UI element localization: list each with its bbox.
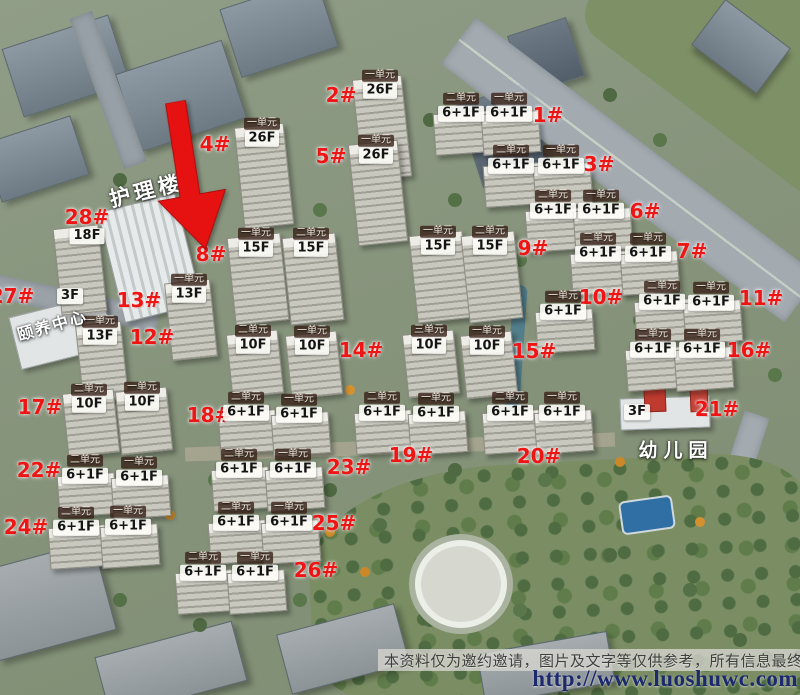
building-24-number-label: 24# (4, 515, 49, 539)
facility-label-3: 幼儿园 (638, 436, 713, 463)
building-20-unit-1-badge: 二单元6+1F (487, 392, 533, 421)
unit-name-label: 三单元 (411, 325, 447, 337)
unit-name-label: 二单元 (644, 281, 680, 293)
floor-count-label: 15F (294, 241, 329, 257)
floor-count-label: 6+1F (540, 304, 586, 320)
floor-count-label: 6+1F (62, 468, 108, 484)
masterplan-aerial-view: 1#二单元6+1F一单元6+1F2#一单元26F3#二单元6+1F一单元6+1F… (0, 0, 800, 695)
building-23-number-label: 23# (327, 455, 372, 479)
floor-count-label: 6+1F (413, 406, 459, 422)
building-20-number-label: 20# (517, 444, 562, 468)
building-11-unit-1-badge: 二单元6+1F (639, 281, 685, 310)
floor-count-label: 26F (245, 131, 280, 147)
unit-name-label: 一单元 (294, 326, 330, 338)
building-25-unit-2-badge: 一单元6+1F (266, 502, 312, 531)
building-19-unit-2-badge: 一单元6+1F (413, 393, 459, 422)
building-25-unit-1-badge: 二单元6+1F (213, 502, 259, 531)
floor-count-label: 6+1F (232, 565, 278, 581)
building-21-number-label: 21# (695, 397, 740, 421)
building-16-number-label: 16# (727, 338, 772, 362)
unit-name-label: 一单元 (630, 233, 666, 245)
floor-count-label: 6+1F (116, 470, 162, 486)
unit-name-label: 二单元 (228, 392, 264, 404)
floor-count-label: 6+1F (216, 462, 262, 478)
facility-3-floor-badge: 3F (624, 404, 650, 420)
building-7-unit-1-badge: 二单元6+1F (575, 233, 621, 262)
building-23-unit-2-badge: 一单元6+1F (270, 449, 316, 478)
unit-name-label: 二单元 (493, 145, 529, 157)
floor-count-label: 18F (70, 228, 105, 244)
unit-name-label: 一单元 (244, 118, 280, 130)
floor-count-label: 6+1F (270, 462, 316, 478)
building-28-floor-badge: 18F (70, 228, 105, 244)
building-25-number-label: 25# (312, 511, 357, 535)
building-2-number-label: 2# (326, 83, 357, 107)
building-6-number-label: 6# (630, 199, 661, 223)
watermark-url: http://www.luoshuwc.com (532, 666, 798, 692)
floor-count-label: 6+1F (223, 405, 269, 421)
floor-count-label: 13F (172, 287, 207, 303)
building-17-unit-1-badge: 二单元10F (71, 384, 107, 413)
unit-name-label: 二单元 (293, 228, 329, 240)
building-4-unit-1-badge: 一单元26F (244, 118, 280, 147)
building-11-number-label: 11# (739, 286, 784, 310)
floor-count-label: 6+1F (630, 342, 676, 358)
building-13-number-label: 13# (117, 288, 162, 312)
unit-name-label: 二单元 (71, 384, 107, 396)
building-15-unit-2-badge: 一单元10F (469, 326, 505, 355)
unit-name-label: 一单元 (491, 93, 527, 105)
floor-count-label: 6+1F (688, 295, 734, 311)
unit-name-label: 二单元 (364, 392, 400, 404)
unit-name-label: 一单元 (281, 394, 317, 406)
building-22-unit-1-badge: 二单元6+1F (62, 455, 108, 484)
unit-name-label: 一单元 (545, 291, 581, 303)
unit-name-label: 二单元 (492, 392, 528, 404)
floor-count-label: 6+1F (578, 203, 624, 219)
floor-count-label: 26F (363, 83, 398, 99)
floor-count-label: 6+1F (266, 515, 312, 531)
building-16-unit-2-badge: 一单元6+1F (679, 329, 725, 358)
building-6-unit-1-badge: 二单元6+1F (530, 190, 576, 219)
floor-count-label: 6+1F (213, 515, 259, 531)
unit-name-label: 一单元 (693, 282, 729, 294)
unit-name-label: 一单元 (271, 502, 307, 514)
unit-name-label: 二单元 (535, 190, 571, 202)
floor-count-label: 6+1F (538, 158, 584, 174)
building-2-unit-1-badge: 一单元26F (362, 70, 398, 99)
building-19-number-label: 19# (389, 443, 434, 467)
floor-count-label: 6+1F (488, 158, 534, 174)
unit-name-label: 二单元 (472, 226, 508, 238)
building-14-number-label: 14# (339, 338, 384, 362)
unit-name-label: 二单元 (185, 552, 221, 564)
building-19-unit-1-badge: 二单元6+1F (359, 392, 405, 421)
floor-count-label: 10F (412, 338, 447, 354)
floor-count-label: 10F (72, 397, 107, 413)
circular-plaza (415, 540, 507, 628)
building-14-unit-2-badge: 一单元10F (294, 326, 330, 355)
building-1-unit-1-badge: 二单元6+1F (438, 93, 484, 122)
building-12-number-label: 12# (130, 325, 175, 349)
floor-count-label: 6+1F (180, 565, 226, 581)
building-15-number-label: 15# (512, 339, 557, 363)
floor-count-label: 15F (421, 239, 456, 255)
unit-name-label: 一单元 (583, 190, 619, 202)
building-11-unit-2-badge: 一单元6+1F (688, 282, 734, 311)
building-23-unit-1-badge: 二单元6+1F (216, 449, 262, 478)
floor-count-label: 6+1F (639, 294, 685, 310)
building-1-number-label: 1# (533, 103, 564, 127)
unit-name-label: 一单元 (275, 449, 311, 461)
unit-name-label: 一单元 (237, 552, 273, 564)
unit-name-label: 一单元 (121, 457, 157, 469)
building-24-unit-2-badge: 一单元6+1F (105, 506, 151, 535)
floor-count-label: 26F (359, 148, 394, 164)
floor-count-label: 6+1F (486, 106, 532, 122)
unit-name-label: 一单元 (420, 226, 456, 238)
building-5-number-label: 5# (316, 144, 347, 168)
floor-count-label: 6+1F (679, 342, 725, 358)
building-13-unit-1-badge: 一单元13F (171, 274, 207, 303)
floor-count-label: 6+1F (487, 405, 533, 421)
building-9-unit-2-badge: 二单元15F (472, 226, 508, 255)
unit-name-label: 一单元 (543, 145, 579, 157)
floor-count-label: 6+1F (530, 203, 576, 219)
city-building (219, 0, 338, 78)
unit-name-label: 一单元 (171, 274, 207, 286)
unit-name-label: 一单元 (124, 382, 160, 394)
building-17-unit-2-badge: 一单元10F (124, 382, 160, 411)
building-26-unit-2-badge: 一单元6+1F (232, 552, 278, 581)
building-9-number-label: 9# (518, 236, 549, 260)
unit-name-label: 一单元 (358, 135, 394, 147)
unit-name-label: 一单元 (544, 392, 580, 404)
unit-name-label: 一单元 (418, 393, 454, 405)
floor-count-label: 10F (125, 395, 160, 411)
unit-name-label: 二单元 (67, 455, 103, 467)
building-8-unit-2-badge: 二单元15F (293, 228, 329, 257)
floor-count-label: 6+1F (53, 520, 99, 536)
unit-name-label: 二单元 (443, 93, 479, 105)
floor-count-label: 6+1F (438, 106, 484, 122)
building-28-number-label: 28# (65, 205, 110, 229)
city-building (0, 115, 89, 202)
floor-count-label: 6+1F (359, 405, 405, 421)
floor-count-label: 6+1F (539, 405, 585, 421)
building-10-unit-1-badge: 一单元6+1F (540, 291, 586, 320)
building-17-number-label: 17# (18, 395, 63, 419)
building-24-unit-1-badge: 二单元6+1F (53, 507, 99, 536)
building-3-unit-1-badge: 二单元6+1F (488, 145, 534, 174)
building-3-unit-2-badge: 一单元6+1F (538, 145, 584, 174)
building-5-unit-1-badge: 一单元26F (358, 135, 394, 164)
building-26-unit-1-badge: 二单元6+1F (180, 552, 226, 581)
building-16-unit-1-badge: 二单元6+1F (630, 329, 676, 358)
unit-name-label: 二单元 (218, 502, 254, 514)
unit-name-label: 二单元 (635, 329, 671, 341)
floor-count-label: 3F (57, 288, 83, 304)
unit-name-label: 一单元 (110, 506, 146, 518)
building-1-unit-2-badge: 一单元6+1F (486, 93, 532, 122)
floor-count-label: 15F (473, 239, 508, 255)
unit-name-label: 一单元 (362, 70, 398, 82)
unit-name-label: 二单元 (580, 233, 616, 245)
floor-count-label: 6+1F (276, 407, 322, 423)
floor-count-label: 10F (295, 339, 330, 355)
building-20-unit-2-badge: 一单元6+1F (539, 392, 585, 421)
city-building (94, 621, 247, 695)
floor-count-label: 3F (624, 404, 650, 420)
building-22-number-label: 22# (17, 458, 62, 482)
floor-count-label: 13F (83, 329, 118, 345)
unit-name-label: 二单元 (221, 449, 257, 461)
building-7-unit-2-badge: 一单元6+1F (625, 233, 671, 262)
building-9-unit-1-badge: 一单元15F (420, 226, 456, 255)
unit-name-label: 二单元 (235, 325, 271, 337)
floor-count-label: 6+1F (625, 246, 671, 262)
floor-count-label: 6+1F (105, 519, 151, 535)
unit-name-label: 一单元 (469, 326, 505, 338)
building-26-number-label: 26# (294, 558, 339, 582)
unit-name-label: 一单元 (684, 329, 720, 341)
floor-count-label: 10F (236, 338, 271, 354)
building-6-unit-2-badge: 一单元6+1F (578, 190, 624, 219)
building-7-number-label: 7# (677, 239, 708, 263)
facility-2-floor-badge: 3F (57, 288, 83, 304)
building-22-unit-2-badge: 一单元6+1F (116, 457, 162, 486)
building-18-unit-2-badge: 一单元6+1F (276, 394, 322, 423)
building-3-number-label: 3# (584, 152, 615, 176)
building-27-number-label: 27# (0, 284, 34, 308)
floor-count-label: 6+1F (575, 246, 621, 262)
floor-count-label: 10F (470, 339, 505, 355)
building-18-unit-1-badge: 二单元6+1F (223, 392, 269, 421)
building-15-unit-1-badge: 三单元10F (411, 325, 447, 354)
building-14-unit-1-badge: 二单元10F (235, 325, 271, 354)
unit-name-label: 二单元 (58, 507, 94, 519)
